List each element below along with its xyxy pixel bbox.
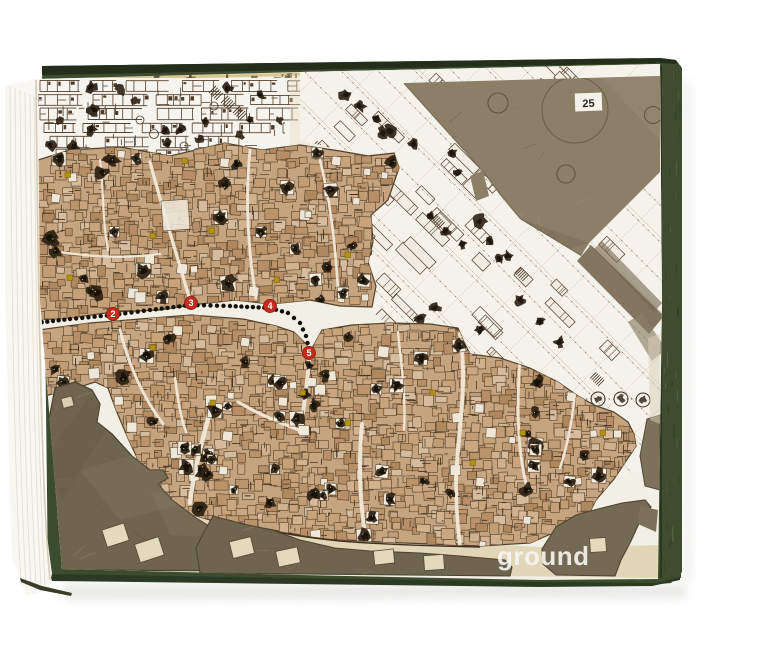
svg-text:25: 25 <box>582 98 595 110</box>
svg-text:4: 4 <box>267 301 272 311</box>
svg-text:3: 3 <box>188 298 193 308</box>
svg-text:2: 2 <box>110 309 115 319</box>
svg-text:ground: ground <box>497 541 590 571</box>
svg-text:5: 5 <box>306 348 311 358</box>
